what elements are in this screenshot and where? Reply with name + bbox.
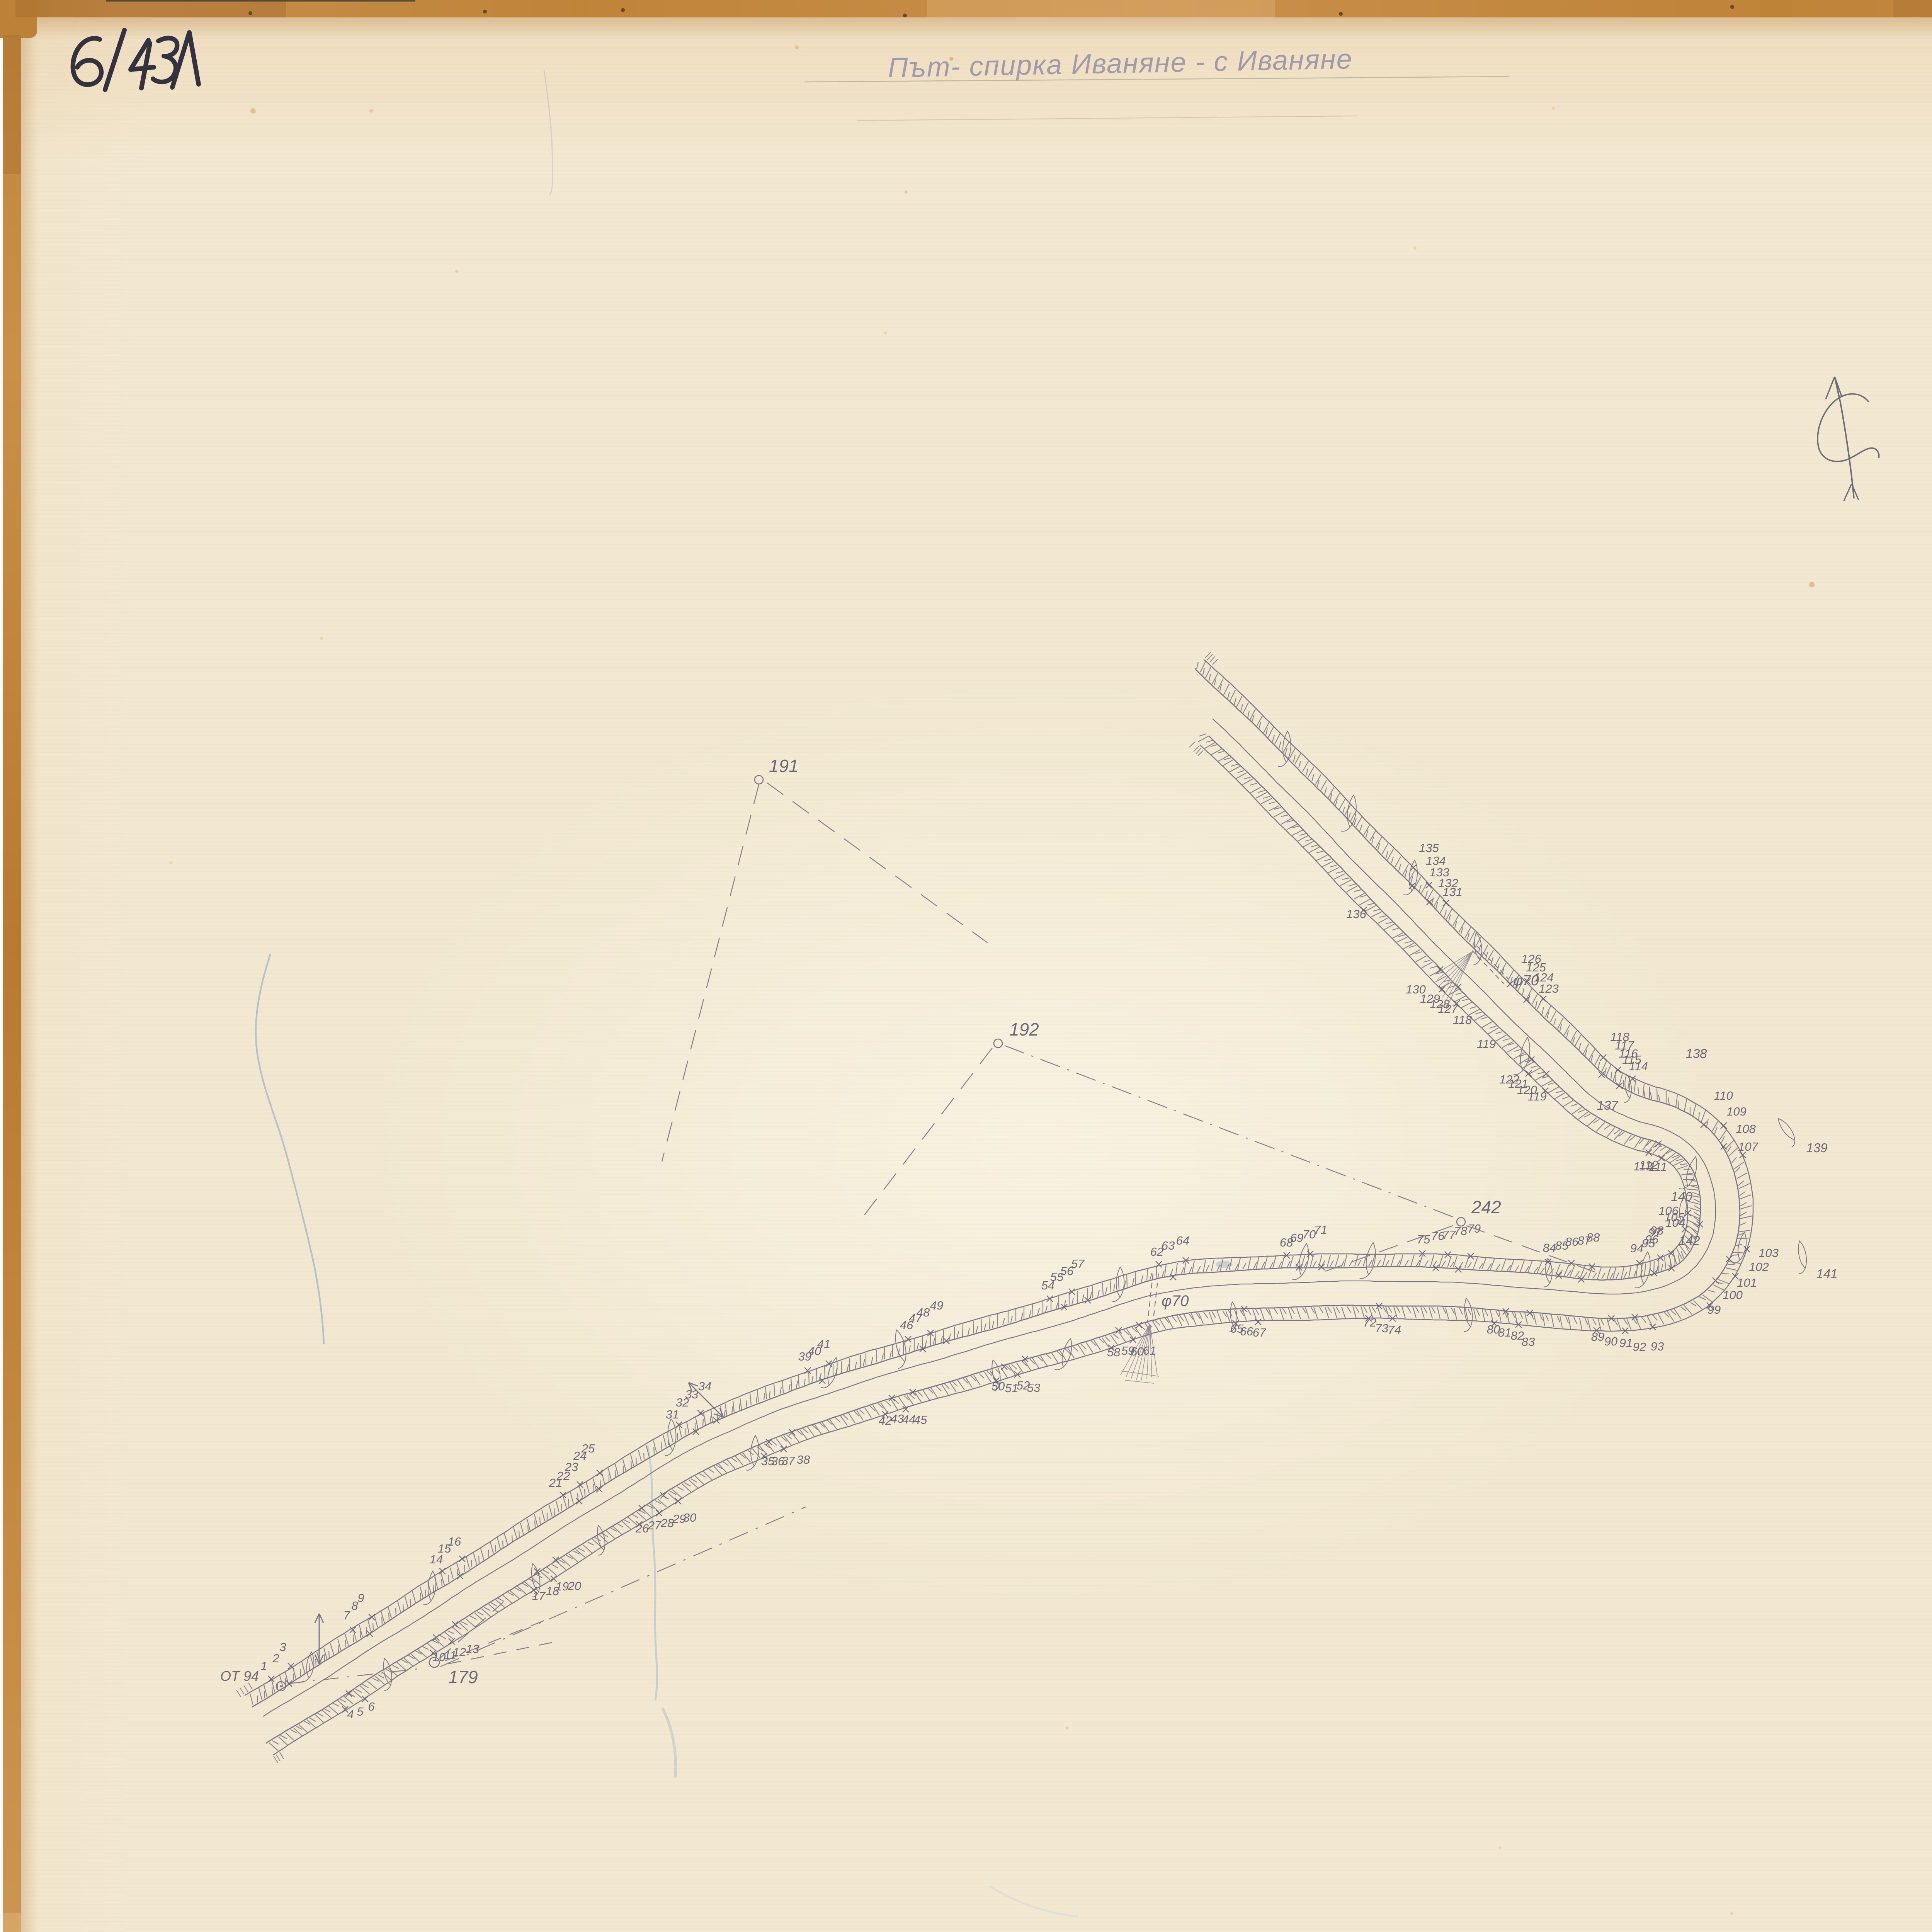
svg-text:179: 179 — [448, 1667, 478, 1687]
svg-text:81: 81 — [1498, 1326, 1511, 1339]
svg-text:9: 9 — [357, 1591, 364, 1605]
svg-text:106: 106 — [1658, 1204, 1679, 1218]
svg-text:49: 49 — [930, 1299, 943, 1312]
svg-text:72: 72 — [1363, 1316, 1376, 1329]
svg-text:20: 20 — [568, 1579, 581, 1593]
svg-text:19: 19 — [556, 1580, 569, 1593]
svg-text:109: 109 — [1726, 1105, 1747, 1118]
svg-text:38: 38 — [797, 1453, 810, 1466]
svg-text:16: 16 — [448, 1535, 461, 1548]
svg-text:13: 13 — [466, 1642, 479, 1656]
svg-text:75: 75 — [1417, 1233, 1430, 1246]
svg-text:ОТ 94: ОТ 94 — [220, 1668, 259, 1684]
svg-text:134: 134 — [1426, 854, 1446, 867]
svg-text:27: 27 — [648, 1519, 662, 1532]
svg-text:98: 98 — [1650, 1224, 1664, 1237]
svg-text:118: 118 — [1610, 1030, 1629, 1044]
svg-text:17: 17 — [532, 1589, 546, 1603]
svg-text:83: 83 — [1522, 1335, 1535, 1349]
svg-text:137: 137 — [1597, 1098, 1619, 1112]
svg-text:141: 141 — [1816, 1267, 1837, 1281]
svg-text:2: 2 — [272, 1651, 279, 1665]
svg-text:28: 28 — [660, 1516, 674, 1530]
svg-text:6: 6 — [368, 1700, 375, 1713]
svg-text:136: 136 — [1346, 907, 1366, 921]
svg-text:26: 26 — [635, 1522, 649, 1535]
svg-text:84: 84 — [1543, 1241, 1556, 1255]
svg-text:110: 110 — [1714, 1089, 1733, 1102]
svg-text:91: 91 — [1619, 1336, 1633, 1350]
svg-text:133: 133 — [1429, 866, 1449, 879]
svg-text:3: 3 — [279, 1640, 286, 1654]
svg-text:93: 93 — [1651, 1340, 1664, 1353]
svg-text:φ70: φ70 — [1513, 973, 1539, 989]
svg-text:12: 12 — [453, 1645, 466, 1659]
svg-text:130: 130 — [1406, 983, 1426, 996]
svg-text:34: 34 — [698, 1379, 711, 1393]
svg-text:102: 102 — [1749, 1260, 1769, 1274]
svg-text:242: 242 — [1471, 1197, 1501, 1217]
svg-text:79: 79 — [1468, 1222, 1481, 1235]
svg-text:74: 74 — [1388, 1323, 1401, 1337]
svg-text:135: 135 — [1419, 841, 1439, 855]
svg-text:126: 126 — [1521, 952, 1541, 966]
svg-text:139: 139 — [1806, 1141, 1827, 1155]
svg-text:103: 103 — [1759, 1246, 1779, 1260]
svg-text:118: 118 — [1453, 1013, 1472, 1027]
svg-text:67: 67 — [1253, 1326, 1267, 1339]
svg-text:Път- спирка Иваняне - с Иванян: Път- спирка Иваняне - с Иваняне — [888, 44, 1353, 83]
svg-text:191: 191 — [769, 756, 799, 776]
svg-text:100: 100 — [1723, 1288, 1743, 1302]
svg-text:5: 5 — [357, 1705, 364, 1718]
svg-text:122: 122 — [1499, 1073, 1519, 1086]
svg-text:41: 41 — [817, 1337, 830, 1351]
svg-text:138: 138 — [1685, 1046, 1707, 1061]
svg-text:90: 90 — [1604, 1335, 1617, 1348]
svg-text:30: 30 — [683, 1511, 696, 1524]
svg-text:42: 42 — [879, 1414, 892, 1427]
svg-text:7: 7 — [343, 1609, 350, 1622]
svg-text:119: 119 — [1477, 1037, 1496, 1051]
svg-text:37: 37 — [782, 1454, 796, 1468]
svg-text:φ70: φ70 — [1162, 1293, 1189, 1310]
svg-text:66: 66 — [1240, 1325, 1253, 1338]
svg-text:31: 31 — [666, 1408, 679, 1421]
svg-text:142: 142 — [1679, 1233, 1700, 1248]
svg-text:86: 86 — [1565, 1235, 1579, 1248]
svg-text:92: 92 — [1633, 1340, 1646, 1354]
svg-text:88: 88 — [1587, 1231, 1600, 1244]
svg-text:113: 113 — [1633, 1160, 1652, 1173]
svg-text:48: 48 — [917, 1306, 930, 1319]
svg-text:1: 1 — [260, 1659, 267, 1673]
svg-text:69: 69 — [1290, 1231, 1303, 1245]
svg-text:101: 101 — [1737, 1276, 1757, 1289]
svg-text:89: 89 — [1591, 1330, 1604, 1344]
svg-text:53: 53 — [1027, 1381, 1040, 1395]
svg-text:50: 50 — [992, 1379, 1005, 1393]
svg-text:192: 192 — [1009, 1019, 1039, 1039]
svg-text:63: 63 — [1162, 1239, 1175, 1252]
svg-text:58: 58 — [1107, 1345, 1121, 1359]
svg-text:45: 45 — [914, 1413, 927, 1427]
svg-text:71: 71 — [1314, 1223, 1327, 1236]
svg-text:4: 4 — [347, 1708, 354, 1721]
svg-text:108: 108 — [1736, 1122, 1756, 1136]
svg-text:99: 99 — [1708, 1303, 1721, 1316]
svg-text:64: 64 — [1176, 1234, 1189, 1247]
svg-text:25: 25 — [581, 1442, 595, 1455]
svg-text:57: 57 — [1071, 1257, 1085, 1270]
svg-text:73: 73 — [1375, 1321, 1388, 1335]
svg-text:107: 107 — [1738, 1140, 1759, 1153]
